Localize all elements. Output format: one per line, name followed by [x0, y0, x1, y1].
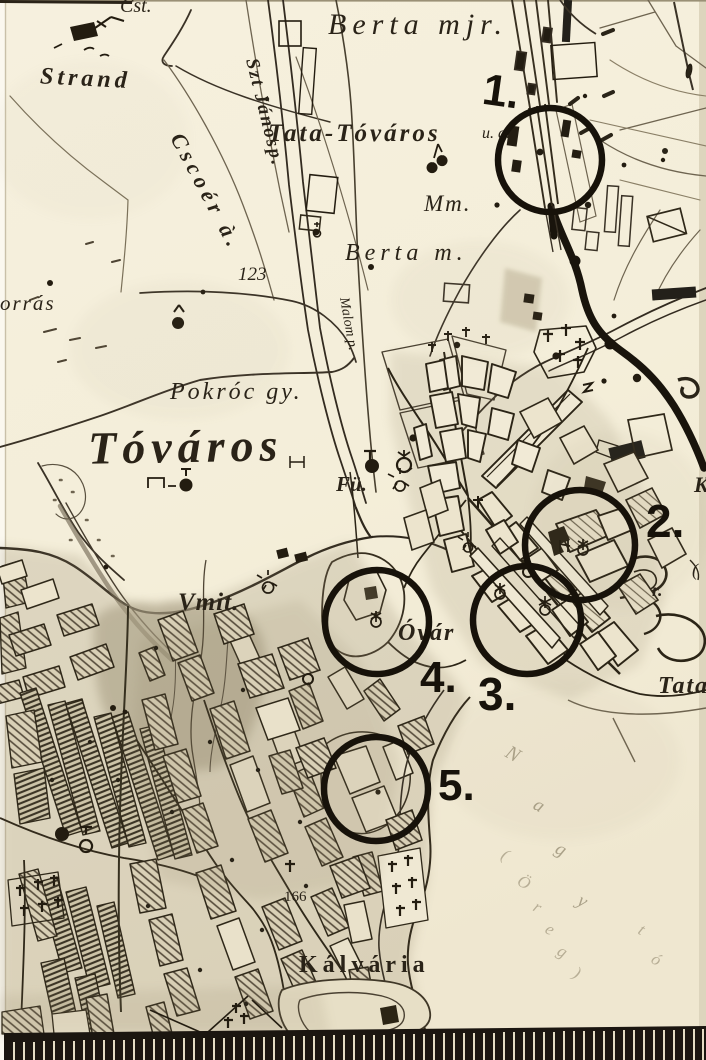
svg-text:2.: 2. [646, 495, 684, 547]
svg-text:Berta m.: Berta m. [345, 240, 468, 266]
svg-text:Berta mjr.: Berta mjr. [328, 8, 508, 41]
svg-text:Fü.: Fü. [335, 472, 367, 496]
svg-text:Pokróc gy.: Pokróc gy. [169, 379, 303, 405]
svg-text:1.: 1. [480, 65, 523, 119]
svg-text:3.: 3. [478, 668, 516, 720]
svg-text:Strand: Strand [39, 63, 131, 94]
svg-text:5.: 5. [438, 761, 475, 810]
svg-text:Mm.: Mm. [423, 191, 472, 216]
svg-text:4.: 4. [420, 653, 457, 702]
svg-text:Tata: Tata [658, 673, 706, 699]
svg-text:Tóváros: Tóváros [88, 419, 284, 473]
svg-text:Vmit.: Vmit. [178, 589, 239, 616]
svg-text:K: K [693, 472, 706, 497]
svg-text:(: ( [692, 560, 699, 581]
svg-text:Cst.: Cst. [120, 0, 152, 17]
svg-text:orrás: orrás [0, 291, 56, 315]
svg-text:r.: r. [652, 580, 663, 600]
svg-text:166: 166 [284, 889, 307, 905]
svg-text:123: 123 [238, 264, 267, 285]
svg-text:Kálvária: Kálvária [299, 952, 430, 978]
svg-text:Tata-Tóváros: Tata-Tóváros [268, 120, 441, 147]
